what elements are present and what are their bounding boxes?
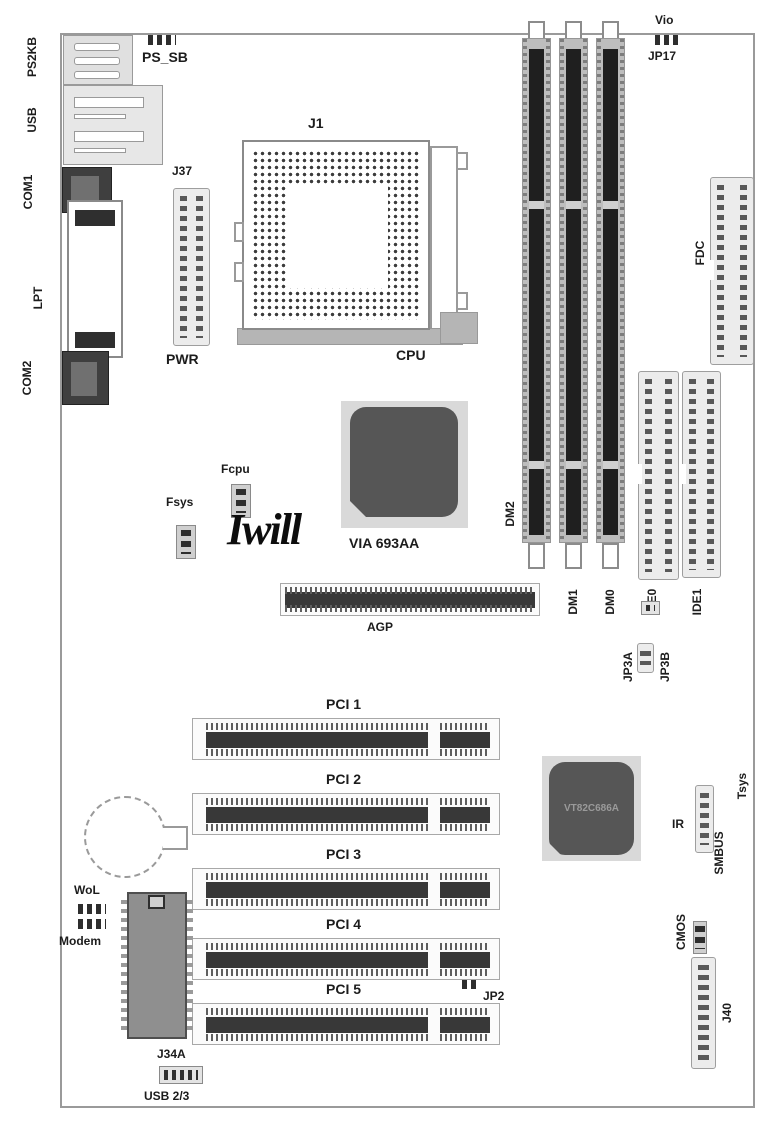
cpu-socket-lever-outline bbox=[430, 146, 458, 332]
fdc-connector bbox=[710, 177, 754, 365]
ide0-connector bbox=[638, 371, 679, 580]
pci3-label: PCI 3 bbox=[326, 847, 361, 861]
lpt-port-label: LPT bbox=[32, 287, 44, 310]
dimm-key-notch bbox=[603, 461, 618, 469]
cmos-jumper-pins bbox=[693, 921, 707, 954]
cpu-socket-tab bbox=[234, 262, 244, 282]
lpt-port-cap bbox=[75, 210, 115, 226]
jp3b-label: JP3B bbox=[659, 652, 671, 682]
pci-slot-bar-short bbox=[440, 1008, 490, 1041]
cmos-battery bbox=[84, 796, 166, 878]
jp2-label: JP2 bbox=[483, 990, 504, 1002]
cpu-socket-tab bbox=[456, 292, 468, 310]
pci-slot-bar-short bbox=[440, 873, 490, 906]
bios-chip bbox=[127, 892, 187, 1039]
southbridge-label: VT82C686A bbox=[549, 762, 634, 855]
pci-slot-bar-short bbox=[440, 943, 490, 976]
dimm-key-notch bbox=[603, 201, 618, 209]
motherboard-layout-diagram: PS2KB USB COM1 LPT COM2 PS_SB J37 PWR J1 bbox=[0, 0, 778, 1131]
northbridge-plate bbox=[341, 401, 468, 528]
chip-corner-notch bbox=[549, 843, 561, 855]
usb-slot bbox=[74, 97, 144, 108]
iwill-logo: Iwill bbox=[227, 508, 300, 552]
dm0-label: DM0 bbox=[604, 589, 616, 614]
ps2-slot bbox=[74, 43, 120, 51]
ide0-key-notch bbox=[635, 464, 642, 484]
cpu-socket-base-step bbox=[440, 312, 478, 344]
ps2-keyboard-port bbox=[63, 35, 133, 85]
jp3-jumper-pins bbox=[641, 601, 660, 615]
ide1-label: IDE1 bbox=[691, 589, 703, 616]
wol-label: WoL bbox=[74, 884, 100, 896]
fcpu-label: Fcpu bbox=[221, 463, 250, 475]
dimm-key-notch bbox=[566, 201, 581, 209]
wol-header-pins bbox=[78, 904, 106, 914]
j37-label: J37 bbox=[172, 165, 192, 177]
dimm-clip bbox=[565, 543, 582, 569]
lpt-port-cap bbox=[75, 332, 115, 348]
atx-power-connector bbox=[173, 188, 210, 346]
pci-slot-5 bbox=[192, 1003, 500, 1045]
ps2-slot bbox=[74, 57, 120, 65]
dm2-label: DM2 bbox=[504, 501, 516, 526]
pci1-label: PCI 1 bbox=[326, 697, 361, 711]
agp-slot-bar bbox=[285, 587, 535, 612]
j1-label: J1 bbox=[308, 116, 324, 130]
usb23-header bbox=[159, 1066, 203, 1084]
pci-slot-bar-short bbox=[440, 798, 490, 831]
cpu-socket-center bbox=[286, 186, 388, 288]
pci-slot-bar-long bbox=[206, 943, 428, 976]
bios-chip-pins-right bbox=[187, 900, 193, 1032]
cpu-socket-base-bar bbox=[237, 328, 463, 345]
dimm-slot-dm2 bbox=[522, 38, 551, 543]
pci4-label: PCI 4 bbox=[326, 917, 361, 931]
dimm-slot-bar bbox=[529, 49, 544, 535]
dimm-slot-bar bbox=[603, 49, 618, 535]
smbus-label: SMBUS bbox=[713, 831, 725, 874]
usb23-label: USB 2/3 bbox=[144, 1090, 189, 1102]
southbridge-plate: VT82C686A bbox=[542, 756, 641, 861]
agp-label: AGP bbox=[367, 621, 393, 633]
jp2-jumper-pins bbox=[462, 980, 479, 989]
usb-port-label: USB bbox=[26, 107, 38, 132]
ps-sb-jumper-pins bbox=[148, 35, 176, 45]
dimm-slot-dm0 bbox=[596, 38, 625, 543]
pci5-label: PCI 5 bbox=[326, 982, 361, 996]
jp17-jumper-pins bbox=[655, 35, 681, 45]
northbridge-chip bbox=[350, 407, 458, 517]
cmos-jumper-label: CMOS bbox=[675, 914, 687, 950]
battery-tab bbox=[163, 826, 188, 850]
fsys-label: Fsys bbox=[166, 496, 193, 508]
dimm-key-notch bbox=[566, 461, 581, 469]
jp3a-label: JP3A bbox=[622, 652, 634, 682]
northbridge-label: VIA 693AA bbox=[349, 536, 419, 550]
dimm-clip bbox=[528, 543, 545, 569]
lpt-port bbox=[67, 200, 123, 358]
jp3-jumper-block bbox=[637, 643, 654, 673]
bios-chip-notch bbox=[148, 895, 165, 909]
fdc-label: FDC bbox=[694, 241, 706, 266]
cpu-label: CPU bbox=[396, 348, 426, 362]
southbridge-chip: VT82C686A bbox=[549, 762, 634, 855]
dimm-key-notch bbox=[529, 201, 544, 209]
jp17-label: JP17 bbox=[648, 50, 676, 62]
vio-label: Vio bbox=[655, 14, 673, 26]
pci-slot-bar-long bbox=[206, 873, 428, 906]
dm1-label: DM1 bbox=[567, 589, 579, 614]
dimm-slot-bar bbox=[566, 49, 581, 535]
pwr-label: PWR bbox=[166, 352, 199, 366]
com2-port-label: COM2 bbox=[21, 361, 33, 396]
com2-port bbox=[62, 351, 109, 405]
ps-sb-jumper-label: PS_SB bbox=[142, 50, 188, 64]
pci-slot-4 bbox=[192, 938, 500, 980]
dimm-slot-dm1 bbox=[559, 38, 588, 543]
chip-corner-notch bbox=[350, 501, 366, 517]
usb-slot bbox=[74, 131, 144, 142]
cpu-socket bbox=[242, 140, 430, 330]
pci-slot-3 bbox=[192, 868, 500, 910]
front-panel-header bbox=[691, 957, 716, 1069]
usb-slot bbox=[74, 148, 126, 153]
cpu-socket-tab bbox=[234, 222, 244, 242]
cpu-socket-tab bbox=[456, 152, 468, 170]
agp-slot bbox=[280, 583, 540, 616]
usb-slot bbox=[74, 114, 126, 119]
modem-header-pins bbox=[78, 919, 106, 929]
com2-port-inner bbox=[71, 362, 97, 396]
pci-slot-2 bbox=[192, 793, 500, 835]
pci2-label: PCI 2 bbox=[326, 772, 361, 786]
dimm-key-notch bbox=[529, 461, 544, 469]
ide1-key-notch bbox=[679, 464, 686, 484]
com1-port-label: COM1 bbox=[22, 175, 34, 210]
pci-slot-bar-short bbox=[440, 723, 490, 756]
system-fan-header bbox=[176, 525, 196, 559]
pci-slot-bar-long bbox=[206, 723, 428, 756]
ps2-slot bbox=[74, 71, 120, 79]
j34a-label: J34A bbox=[157, 1048, 186, 1060]
ir-label: IR bbox=[672, 818, 684, 830]
fdc-key-notch bbox=[707, 260, 714, 280]
tsys-label: Tsys bbox=[736, 773, 748, 799]
pci-slot-1 bbox=[192, 718, 500, 760]
pci-slot-bar-long bbox=[206, 798, 428, 831]
pci-slot-bar-long bbox=[206, 1008, 428, 1041]
dimm-clip bbox=[602, 543, 619, 569]
j40-label: J40 bbox=[721, 1003, 733, 1023]
modem-label: Modem bbox=[59, 935, 101, 947]
ps2kb-port-label: PS2KB bbox=[26, 37, 38, 77]
ide1-connector bbox=[682, 371, 721, 578]
usb-port-stack bbox=[63, 85, 163, 165]
